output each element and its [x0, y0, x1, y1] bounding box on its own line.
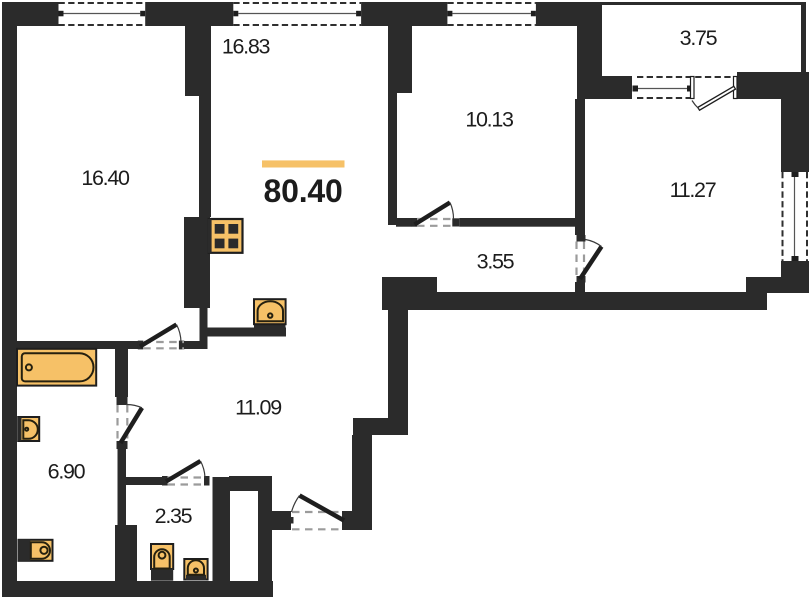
svg-text:16.83: 16.83 [222, 35, 271, 59]
svg-text:16.40: 16.40 [81, 166, 130, 190]
svg-text:6.90: 6.90 [48, 460, 86, 484]
svg-text:80.40: 80.40 [264, 173, 343, 209]
svg-text:3.55: 3.55 [477, 250, 515, 274]
svg-text:2.35: 2.35 [155, 504, 193, 528]
svg-text:3.75: 3.75 [680, 26, 718, 50]
svg-text:10.13: 10.13 [465, 108, 514, 132]
svg-text:11.27: 11.27 [670, 178, 716, 202]
svg-text:11.09: 11.09 [235, 396, 281, 420]
